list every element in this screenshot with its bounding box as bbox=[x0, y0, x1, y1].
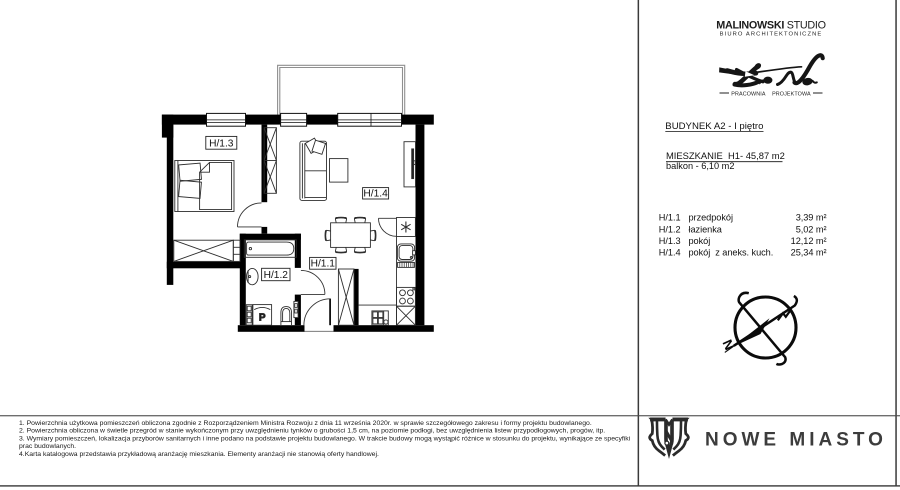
svg-text:pokój z aneks. kuch.: pokój z aneks. kuch. bbox=[689, 248, 774, 258]
svg-text:przedpokój: przedpokój bbox=[689, 213, 733, 223]
svg-text:łazienka: łazienka bbox=[689, 224, 723, 234]
svg-text:balkon - 6,10 m2: balkon - 6,10 m2 bbox=[666, 161, 734, 171]
svg-text:H/1.3: H/1.3 bbox=[209, 138, 234, 149]
svg-text:H/1.2: H/1.2 bbox=[659, 224, 681, 234]
svg-text:H/1.4: H/1.4 bbox=[363, 189, 388, 200]
svg-text:2. Powierzchnia obliczona w św: 2. Powierzchnia obliczona w świetle prze… bbox=[19, 428, 605, 435]
svg-text:H/1.1: H/1.1 bbox=[311, 259, 336, 270]
svg-text:BIURO ARCHITEKTONICZNE: BIURO ARCHITEKTONICZNE bbox=[720, 31, 823, 37]
svg-text:BUDYNEK A2 - I piętro: BUDYNEK A2 - I piętro bbox=[665, 121, 763, 132]
svg-text:3,39 m²: 3,39 m² bbox=[796, 213, 827, 223]
svg-text:H/1.2: H/1.2 bbox=[264, 270, 289, 281]
svg-text:12,12 m²: 12,12 m² bbox=[791, 236, 827, 246]
svg-text:1. Powierzchnia użytkowa pomie: 1. Powierzchnia użytkowa pomieszczeń obl… bbox=[19, 420, 592, 427]
svg-text:NOWE MIASTO: NOWE MIASTO bbox=[705, 430, 887, 451]
svg-text:5,02 m²: 5,02 m² bbox=[796, 224, 827, 234]
svg-text:pokój: pokój bbox=[689, 236, 711, 246]
svg-text:4.Karta katalogowa przedstawia: 4.Karta katalogowa przedstawia przykłado… bbox=[19, 451, 379, 458]
svg-text:PRACOWNIA PROJEKTOWA: PRACOWNIA PROJEKTOWA bbox=[731, 91, 811, 97]
svg-text:MIESZKANIE H1- 45,87 m2: MIESZKANIE H1- 45,87 m2 bbox=[666, 150, 785, 161]
svg-text:prac budowlanych.: prac budowlanych. bbox=[19, 443, 76, 450]
svg-text:3. Wymiary pomieszczeń, lokali: 3. Wymiary pomieszczeń, lokalizacja przy… bbox=[19, 435, 631, 442]
svg-text:25,34 m²: 25,34 m² bbox=[791, 248, 827, 258]
svg-text:H/1.3: H/1.3 bbox=[659, 236, 681, 246]
svg-text:H/1.4: H/1.4 bbox=[659, 248, 681, 258]
svg-text:MALINOWSKI STUDIO: MALINOWSKI STUDIO bbox=[716, 20, 825, 32]
svg-text:H/1.1: H/1.1 bbox=[659, 213, 681, 223]
svg-text:P: P bbox=[259, 313, 266, 324]
